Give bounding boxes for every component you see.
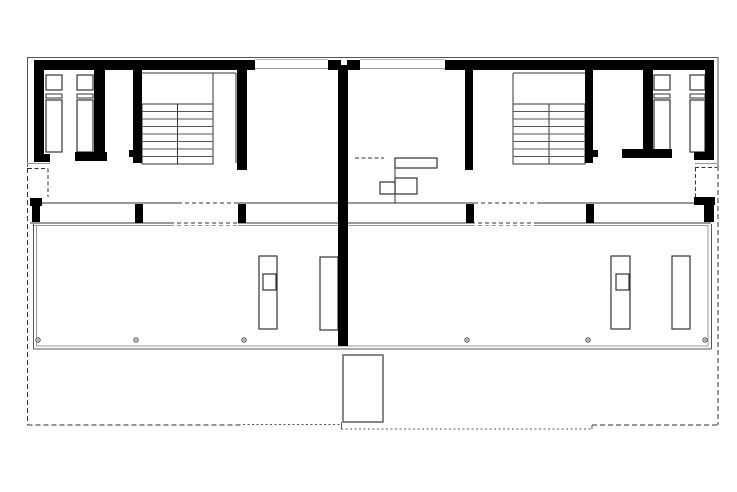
terrace-column-dot-center <box>704 339 705 340</box>
terrace-column-dot-center <box>587 339 588 340</box>
left-bath2-fixture-lower <box>77 100 93 152</box>
left-exterior-wall <box>34 60 44 154</box>
party-wall-top-notch <box>341 60 347 65</box>
right-facade-pier <box>704 205 714 222</box>
right-bath1-fixture-upper <box>654 75 670 90</box>
left-bath1-fixture-upper <box>46 75 62 90</box>
top-facade-right-segment <box>445 60 712 70</box>
left-bath1-fixture-lower <box>46 100 62 152</box>
floor-plan-canvas <box>0 0 737 492</box>
left-bath-partition-foot <box>75 152 107 161</box>
right-bath2-fixture-lower <box>690 100 705 152</box>
left-facade-mullion-1 <box>135 204 143 223</box>
right-stair-wall-stub <box>593 150 598 157</box>
kitchen-counter-mid-bar <box>395 178 417 194</box>
right-terrace-island <box>611 256 630 329</box>
terrace-column-dot-center <box>135 339 136 340</box>
floor-plan <box>0 0 737 492</box>
right-bath-partition-wall <box>643 68 653 150</box>
right-facade-mullion-2 <box>586 204 594 223</box>
garden-box <box>343 355 383 422</box>
kitchen-sink-box <box>380 182 395 194</box>
left-exterior-wall-cap <box>34 154 50 162</box>
left-bath2-fixture-upper <box>77 75 93 90</box>
left-stair-wall-stub <box>129 150 134 157</box>
right-bath2-fixture-upper <box>690 75 705 90</box>
left-bath-partition-wall <box>94 68 105 152</box>
left-entry-corner-cap <box>30 198 42 206</box>
left-facade-mullion-2 <box>238 204 246 223</box>
terrace-column-dot-center <box>243 339 244 340</box>
kitchen-counter-top-bar <box>395 158 437 168</box>
party-wall <box>338 60 348 346</box>
right-entry-corner-cap <box>694 197 715 205</box>
left-terrace-bench <box>320 257 338 330</box>
top-facade-left-segment <box>34 60 255 70</box>
right-bath1-fixture-divider <box>654 94 670 98</box>
right-bath1-fixture-lower <box>654 100 670 152</box>
left-stair-east-wall <box>237 68 247 170</box>
left-stair-west-wall <box>133 68 142 163</box>
right-exterior-wall <box>705 60 714 154</box>
right-terrace-bench <box>672 256 690 329</box>
right-terrace-island-sink <box>616 274 629 290</box>
right-stair-east-wall <box>585 68 593 163</box>
left-terrace-island <box>259 256 277 329</box>
right-exterior-wall-cap <box>694 152 714 160</box>
terrace-column-dot-center <box>466 339 467 340</box>
left-terrace-island-sink <box>263 274 276 290</box>
right-bath2-fixture-divider <box>690 94 705 98</box>
left-bath2-fixture-divider <box>77 94 93 98</box>
right-stair-west-wall <box>465 68 473 170</box>
left-bath1-fixture-divider <box>46 94 62 98</box>
right-facade-mullion-1 <box>466 204 474 223</box>
right-bath-partition-foot <box>622 149 672 158</box>
terrace-column-dot-center <box>37 339 38 340</box>
left-facade-pier <box>32 206 40 222</box>
